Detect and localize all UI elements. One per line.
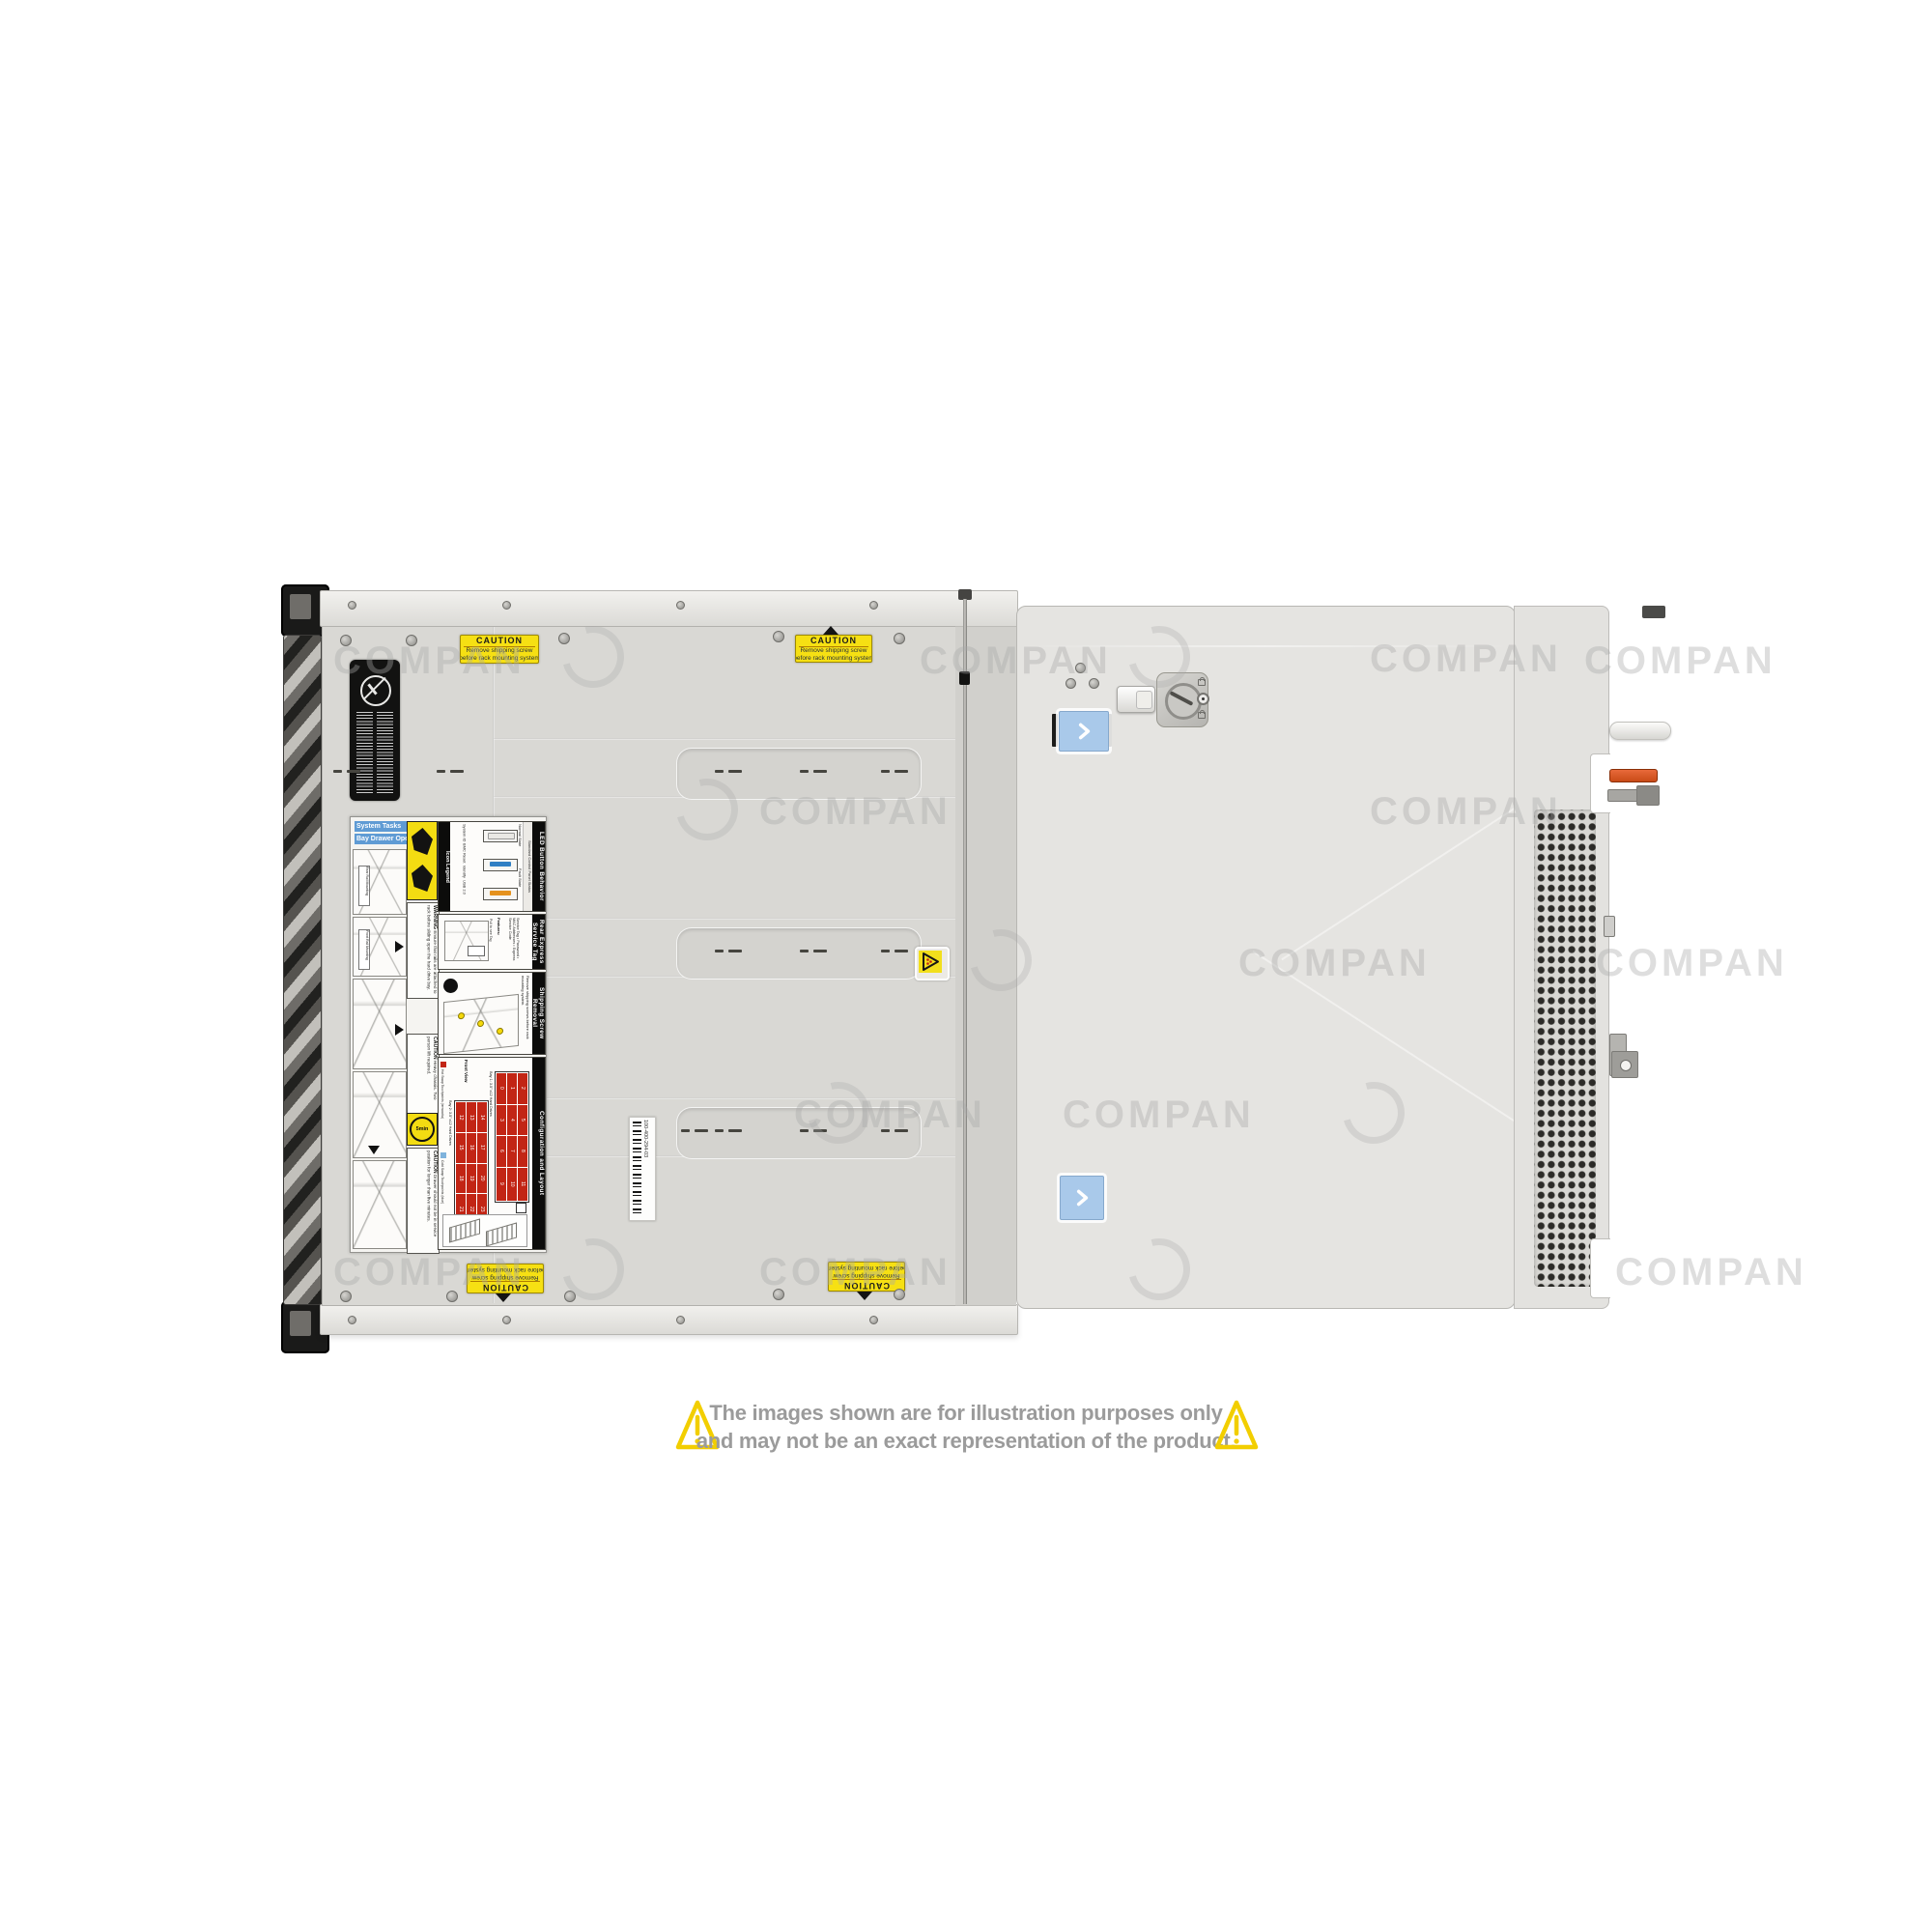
cold-swap-touchpoint-bottom[interactable] [1060, 1176, 1104, 1220]
screw-hole [1065, 678, 1076, 689]
watermark-text: COMPAN [1584, 639, 1776, 683]
part-number-label: 100-400-294-03 [629, 1117, 656, 1221]
shipping-note: Remove shipping screws before rack mount… [520, 976, 530, 1051]
lid-recess [676, 927, 922, 980]
front-view-label: Front View [464, 1060, 469, 1102]
drive-bay-cell: 5 [518, 1105, 527, 1136]
rail-tag-front: Front Rail Mounting [358, 929, 370, 970]
led-fill-orange [490, 891, 511, 895]
led-fill-blue [490, 862, 511, 867]
drive-tray-sketch [449, 1218, 480, 1242]
section-configuration-layout: Hot Swap Touchpoints (terracotta) Cold S… [438, 1057, 546, 1250]
pull-to-see-tag: Pull to see Tag [489, 919, 493, 965]
legend-item: System ID [463, 824, 468, 841]
stamp-mark [895, 770, 908, 773]
stamp-mark [715, 1129, 724, 1132]
rail-mount-illustration: Rear Rail Mounting [353, 849, 407, 915]
chassis-screw-illustration [443, 994, 519, 1054]
drive-bay-cell: 6 [497, 1136, 506, 1167]
drive-bay-cell: 0 [497, 1073, 506, 1104]
led-bar-fault [483, 888, 518, 900]
features-label: Features: [497, 918, 501, 966]
lid-crease [494, 1097, 955, 1099]
drive-bay-cell: 4 [507, 1105, 517, 1136]
hinge-rod [963, 599, 967, 1304]
bay2-label: Bay 2: 3.5" x12 Hard Drives [448, 1100, 452, 1222]
rail-screw [348, 1316, 356, 1324]
caution-sticker-top-left: CAUTION Remove shipping screw before rac… [460, 635, 539, 664]
drive-bay-cell: 20 [477, 1164, 487, 1194]
drive-bay-cell: 3 [497, 1105, 506, 1136]
pictogram-figure [412, 828, 433, 855]
led-subtitle: Standard Control Panel Status [523, 822, 532, 911]
lid-crease [494, 918, 955, 920]
bay1-label: Bay 1: 3.5" x12 Hard Drives [489, 1071, 493, 1199]
lift-hazard-pictogram [407, 821, 438, 900]
stamp-mark [881, 950, 890, 952]
caution-title: CAUTION [464, 636, 535, 647]
chevron-right-icon [1071, 1187, 1093, 1208]
bay1-drive-grid: 01234567891011 [495, 1071, 529, 1203]
caution-sticker-bottom-middle: CAUTION Remove shipping screw before rac… [828, 1262, 905, 1292]
pull-tag-illustration [468, 946, 485, 956]
stamp-mark [715, 950, 724, 952]
led-fill [488, 833, 515, 839]
clock-icon: 5min [410, 1117, 435, 1142]
lid-screw [406, 635, 417, 646]
legend-item: Identify [463, 866, 468, 878]
stamp-mark [881, 770, 890, 773]
rail-screw [869, 1316, 878, 1324]
warning-triangle-icon [919, 951, 942, 973]
screw-marker [458, 1012, 465, 1020]
stamp-mark [333, 770, 342, 773]
configuration-header: Configuration and Layout [532, 1058, 545, 1249]
caution-sticker-top-middle: CAUTION Remove shipping screw before rac… [795, 635, 872, 663]
shipping-header: Shipping Screw Removal [532, 973, 545, 1054]
legend-item: USB 2.0 [463, 880, 468, 895]
stamp-mark [728, 950, 742, 952]
drive-bay-cell: 1 [507, 1073, 517, 1104]
drive-bay-cell: 19 [467, 1164, 476, 1194]
lid-crease [494, 738, 955, 740]
drawer-slide-illustration [353, 1071, 407, 1158]
lid-screw [773, 631, 784, 642]
latch-clip-top [1636, 785, 1660, 806]
caution-line1: Remove shipping screw [472, 1274, 539, 1282]
front-edge-hardware [283, 635, 322, 1305]
lid-recess [676, 1107, 922, 1159]
usb-port-cell [516, 1203, 526, 1213]
service-tag-header: Rear Express Service Tag [532, 915, 545, 969]
barcode [633, 1122, 641, 1214]
drive-bay-cell: 8 [518, 1136, 527, 1167]
cold-swap-legend-swatch [440, 1152, 446, 1158]
stamp-mark [881, 1129, 890, 1132]
hot-swap-legend-swatch [440, 1062, 446, 1067]
stamp-mark [437, 770, 445, 773]
alignment-notch [857, 1292, 872, 1300]
rail-screw [348, 601, 356, 610]
vent-grille [1534, 810, 1596, 1287]
icon-legend-header: Icon Legend [439, 822, 450, 911]
screw-marker [477, 1020, 484, 1028]
screw-hole [1075, 663, 1086, 673]
lid-screw [558, 633, 570, 644]
rail-screw [676, 1316, 685, 1324]
lid-crease [1019, 645, 1512, 647]
locked-icon [1198, 712, 1206, 719]
drive-bay-cell: 2 [518, 1073, 527, 1104]
warning-note: WARNING Ensure that rails are attached t… [407, 902, 440, 999]
caution-title: CAUTION [799, 636, 868, 647]
rail-tag-rear: Rear Rail Mounting [358, 866, 370, 906]
caution-line1: Remove shipping screw [834, 1272, 900, 1280]
lid-release-slider[interactable] [1117, 686, 1155, 713]
drive-bay-cell: 14 [477, 1102, 487, 1132]
icon-legend-list: System ID BMC Reset Identify USB 2.0 [451, 824, 478, 909]
edge-notch [1590, 753, 1610, 813]
arrow-icon [395, 1024, 404, 1036]
slider-thumb[interactable] [1136, 691, 1152, 709]
stamp-mark [800, 770, 809, 773]
instruction-label-panel: System Tasks Bay Drawer Operation Rear R… [350, 816, 547, 1253]
pinch-warning-sticker [915, 947, 950, 980]
lid-lock-plate[interactable] [1156, 672, 1208, 727]
caution-heavy-note: CAUTION Heavy chassis. Two person lift r… [407, 1034, 440, 1115]
drive-bay-cell: 16 [467, 1133, 476, 1163]
stamp-mark [813, 1129, 827, 1132]
alignment-notch [496, 1293, 511, 1302]
chassis-rail-top [320, 590, 1018, 627]
drive-bay-cell: 9 [497, 1168, 506, 1201]
edge-notch [1590, 1238, 1610, 1298]
arrow-icon [368, 1146, 380, 1154]
arrow-icon [395, 941, 404, 952]
drawer-isometric-drawing [442, 1214, 527, 1247]
lid-screw [340, 635, 352, 646]
five-minute-timer-icon: 5min [407, 1113, 438, 1146]
touchpoint-clip [1052, 714, 1058, 747]
stamp-mark [895, 1129, 908, 1132]
stamp-mark [800, 1129, 809, 1132]
drive-bay-cell: 17 [477, 1133, 487, 1163]
stamp-mark [450, 770, 464, 773]
lid-screw [564, 1291, 576, 1302]
stamp-mark [728, 770, 742, 773]
rail-screw [502, 601, 511, 610]
drawer-close-illustration [353, 1160, 407, 1249]
lid-recess [676, 748, 922, 800]
caution-drawer-note: CAUTION Drawer should not be in service … [407, 1148, 440, 1254]
caution-line2: before rack mounting system [460, 655, 539, 663]
stamp-mark [681, 1129, 690, 1132]
caution-title: CAUTION [832, 1279, 901, 1291]
rail-screw [869, 601, 878, 610]
lock-indicator [1197, 693, 1209, 705]
caution-sticker-bottom-left: CAUTION Remove shipping screw before rac… [467, 1264, 544, 1293]
chevron-right-icon [1073, 721, 1094, 742]
drive-bay-cell: 10 [507, 1168, 517, 1201]
caution-line2: before rack mounting system [467, 1266, 544, 1274]
drive-bay-cell: 18 [456, 1164, 466, 1194]
features-list: Service Tag • Password • MAC Addresses •… [504, 918, 520, 966]
drive-bay-cell: 15 [456, 1133, 466, 1163]
latch-hole [1620, 1060, 1632, 1071]
stamp-mark [715, 770, 724, 773]
section-service-tag: Pull to see Tag Features: Service Tag • … [438, 914, 546, 970]
stop-hand-icon [443, 979, 458, 993]
stamp-mark [800, 950, 809, 952]
fine-print-block [377, 712, 393, 793]
release-lever-orange[interactable] [1609, 769, 1658, 782]
edge-tab [1604, 916, 1615, 937]
section-led-button-behavior: Icon Legend System ID BMC Reset Identify… [438, 821, 546, 912]
stamp-mark [695, 1129, 708, 1132]
caution-line2: before rack mounting system [828, 1264, 905, 1272]
led-bar-blue [483, 859, 518, 871]
bay2-drive-grid: 121314151617181920212223 [454, 1100, 489, 1226]
bracket-insert [290, 1311, 311, 1336]
rear-corner-bracket [1642, 606, 1665, 618]
lid-screw [446, 1291, 458, 1302]
stamp-mark [728, 1129, 742, 1132]
disclaimer-warning-icon-right [1213, 1398, 1260, 1454]
section-shipping-screw: Remove shipping screws before rack mount… [438, 972, 546, 1055]
pictogram-figure [412, 865, 433, 892]
led-section-header: LED Button Behavior [532, 822, 545, 911]
lid-screw [340, 1291, 352, 1302]
unlocked-icon [1198, 679, 1206, 686]
product-photo-stage: CAUTION Remove shipping screw before rac… [0, 0, 1932, 1932]
cold-swap-touchpoint-top[interactable] [1059, 711, 1109, 752]
bracket-insert [290, 594, 311, 619]
stamp-mark [813, 770, 827, 773]
drive-bay-cell: 7 [507, 1136, 517, 1167]
alignment-notch [823, 626, 838, 635]
stamp-mark [895, 950, 908, 952]
stamp-mark [347, 770, 360, 773]
rear-handle-bar[interactable] [1609, 722, 1671, 740]
drive-bay-cell: 11 [518, 1168, 527, 1201]
stamp-mark [813, 950, 827, 952]
part-number-text: 100-400-294-03 [642, 1120, 648, 1216]
lid-screw [894, 1289, 905, 1300]
screw-hole [1089, 678, 1099, 689]
legend-item: BMC Reset [463, 843, 468, 863]
rail-screw [502, 1316, 511, 1324]
lid-screw [894, 633, 905, 644]
chassis-rail-bottom [320, 1304, 1018, 1335]
watermark-text: COMPAN [1615, 1251, 1807, 1294]
drive-bay-cell: 12 [456, 1102, 466, 1132]
watermark-text: COMPAN [1596, 942, 1788, 985]
regulatory-label [350, 660, 400, 801]
caution-title: CAUTION [470, 1281, 540, 1293]
drive-tray-sketch [486, 1222, 517, 1246]
caution-line2: before rack mounting system [795, 655, 872, 663]
lid-screw [773, 1289, 784, 1300]
hot-swap-legend-label: Hot Swap Touchpoints (terracotta) [440, 1069, 444, 1149]
latch-plate-bottom [1611, 1051, 1638, 1078]
caution-line1: Remove shipping screw [800, 647, 867, 655]
rail-screw [676, 601, 685, 610]
screw-marker [497, 1028, 503, 1036]
fine-print-block [356, 712, 373, 793]
drive-bay-cell: 13 [467, 1102, 476, 1132]
led-bar-normal [483, 830, 518, 842]
caution-line1: Remove shipping screw [466, 647, 532, 655]
hinge-band [959, 671, 970, 685]
